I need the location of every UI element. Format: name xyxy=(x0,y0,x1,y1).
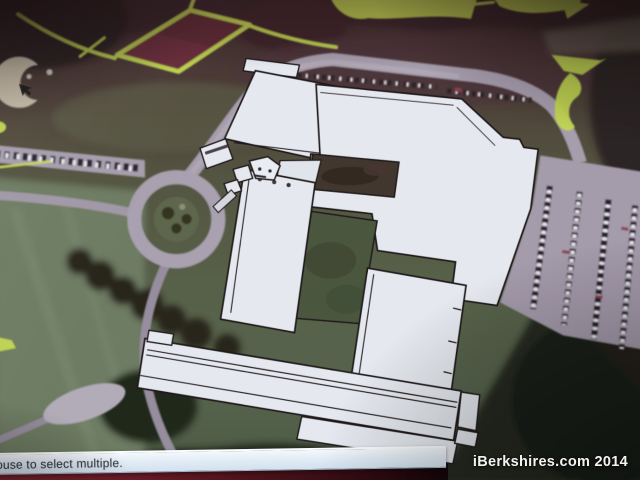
long-wing-end-step xyxy=(457,392,480,431)
screen-photo: ouse to select multiple. iBerkshires.com… xyxy=(0,0,640,480)
viewport-canvas[interactable] xyxy=(0,0,640,480)
status-text: ouse to select multiple. xyxy=(0,455,123,471)
watermark: iBerkshires.com 2014 xyxy=(473,454,628,470)
long-wing-end-tab xyxy=(454,429,478,448)
